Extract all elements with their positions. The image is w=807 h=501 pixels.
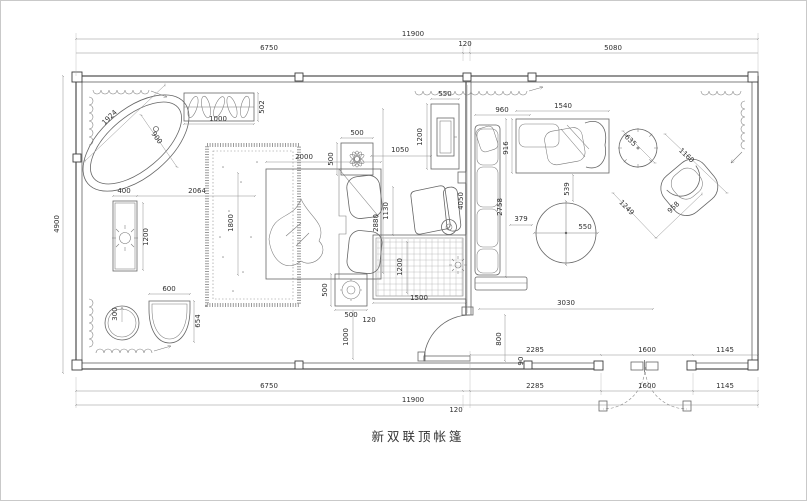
floor-plan-canvas: 11900 6750 120 5080 4900 2285 1600 1145 … [0, 0, 807, 501]
dim-bot2-d: 1145 [716, 382, 734, 390]
dim-sofa2-gap: 539 [563, 182, 571, 195]
dim-chair2-width: 1160 [677, 147, 695, 165]
dim-tv-length: 1200 [416, 128, 424, 146]
wall-posts [72, 72, 758, 370]
bathtub [66, 76, 206, 209]
drapery-top-right [701, 91, 745, 163]
dim-wall-thickness: 90 [517, 357, 525, 366]
dimension-labels: 11900 6750 120 5080 4900 2285 1600 1145 … [53, 30, 734, 414]
dim-nightstand-top-d: 500 [327, 152, 335, 165]
round-side-table [618, 128, 658, 168]
dim-living-width: 3030 [557, 299, 575, 307]
dim-nightstand-offset: 120 [362, 316, 375, 324]
dim-nightstand-bot-d: 500 [321, 283, 329, 296]
dim-bed-length: 2000 [295, 153, 313, 161]
dim-vanity-gap: 2064 [188, 187, 206, 195]
nightstand-top [341, 143, 373, 175]
dim-bot1-c: 1145 [716, 346, 734, 354]
dim-stool-radius: 300 [111, 307, 119, 320]
door-leaf [683, 401, 691, 411]
throw-blanket [269, 199, 323, 266]
drawing-title: 新双联顶帐篷 [371, 429, 464, 444]
plant-icon [349, 151, 365, 167]
sofa-cushion [543, 126, 586, 166]
dim-sofa1-width: 960 [495, 106, 508, 114]
dim-basin-height: 654 [194, 314, 202, 328]
tv [437, 118, 454, 156]
floor-plan-drawing: 11900 6750 120 5080 4900 2285 1600 1145 … [1, 1, 807, 501]
dim-table2-gap: 379 [514, 215, 527, 223]
tv-cabinet [431, 104, 459, 169]
sofa-bench [475, 277, 527, 290]
bed [266, 169, 383, 279]
dim-bed-width: 1800 [227, 214, 235, 232]
dim-mat-width: 1500 [410, 294, 428, 302]
partition-wall [466, 82, 471, 315]
dim-mat-height: 1200 [396, 258, 404, 276]
dim-nightstand-bot-w: 500 [344, 311, 357, 319]
dim-basin-width: 600 [162, 285, 175, 293]
lounge-chair [411, 186, 462, 235]
dim-bot2-c: 1600 [638, 382, 656, 390]
dim-bot2-b: 2285 [526, 382, 544, 390]
dim-chair-width: 1130 [382, 202, 390, 220]
drapery-bottom-left [96, 346, 171, 353]
pillow [346, 174, 384, 220]
dim-top-seg3: 5080 [604, 44, 622, 52]
wall-switch [458, 172, 466, 183]
single-door [418, 307, 473, 361]
dim-table2-diameter: 550 [578, 223, 591, 231]
dim-partition-length: 4050 [457, 192, 465, 210]
vanity-console [112, 201, 138, 271]
dim-rack-width: 1000 [209, 115, 227, 123]
shower-fixture-icon [449, 256, 467, 274]
dim-bot1-a: 2285 [526, 346, 544, 354]
drapery-left-wall-top [89, 97, 93, 145]
sofa [516, 119, 609, 173]
dim-vanity-width: 400 [117, 187, 130, 195]
faucet-icon [112, 225, 138, 251]
dim-left-height: 4900 [53, 215, 61, 233]
dim-table1-diameter: 635 [623, 133, 638, 148]
dim-nightstand-top-w: 500 [350, 129, 363, 137]
dim-nightstand-gap: 1000 [342, 328, 350, 346]
dim-top-seg1: 6750 [260, 44, 278, 52]
duvet-edge [339, 169, 346, 279]
dim-sofa2-depth: 916 [502, 141, 510, 155]
dim-bot3-b: 120 [449, 406, 462, 414]
dim-bot1-b: 1600 [638, 346, 656, 354]
basin-chair [149, 301, 190, 343]
dim-rack-depth: 502 [258, 100, 266, 113]
door-leaf [599, 401, 607, 411]
dim-top-overall: 11900 [402, 30, 424, 38]
dim-bot2-a: 6750 [260, 382, 278, 390]
lamp-icon [340, 279, 362, 301]
dim-door-width: 800 [495, 332, 503, 345]
drapery-top-center [415, 87, 543, 95]
dim-bot3-a: 11900 [402, 396, 424, 404]
shower-mat [373, 235, 467, 299]
dim-living-depth: 2758 [496, 198, 504, 216]
pillow [346, 229, 383, 274]
dim-tub-width: 900 [149, 130, 163, 146]
dim-tv-gap: 1050 [391, 146, 409, 154]
dim-tv-width: 550 [438, 90, 451, 98]
door-leaf [424, 356, 470, 361]
dim-top-seg2: 120 [458, 40, 471, 48]
dim-sofa2-width: 1540 [554, 102, 572, 110]
dim-room-depth: 2880 [372, 214, 380, 232]
coffee-table [534, 201, 598, 265]
outer-walls [76, 76, 758, 369]
dim-vanity-length: 1200 [142, 228, 150, 246]
drapery-left-wall-bottom [89, 299, 93, 347]
